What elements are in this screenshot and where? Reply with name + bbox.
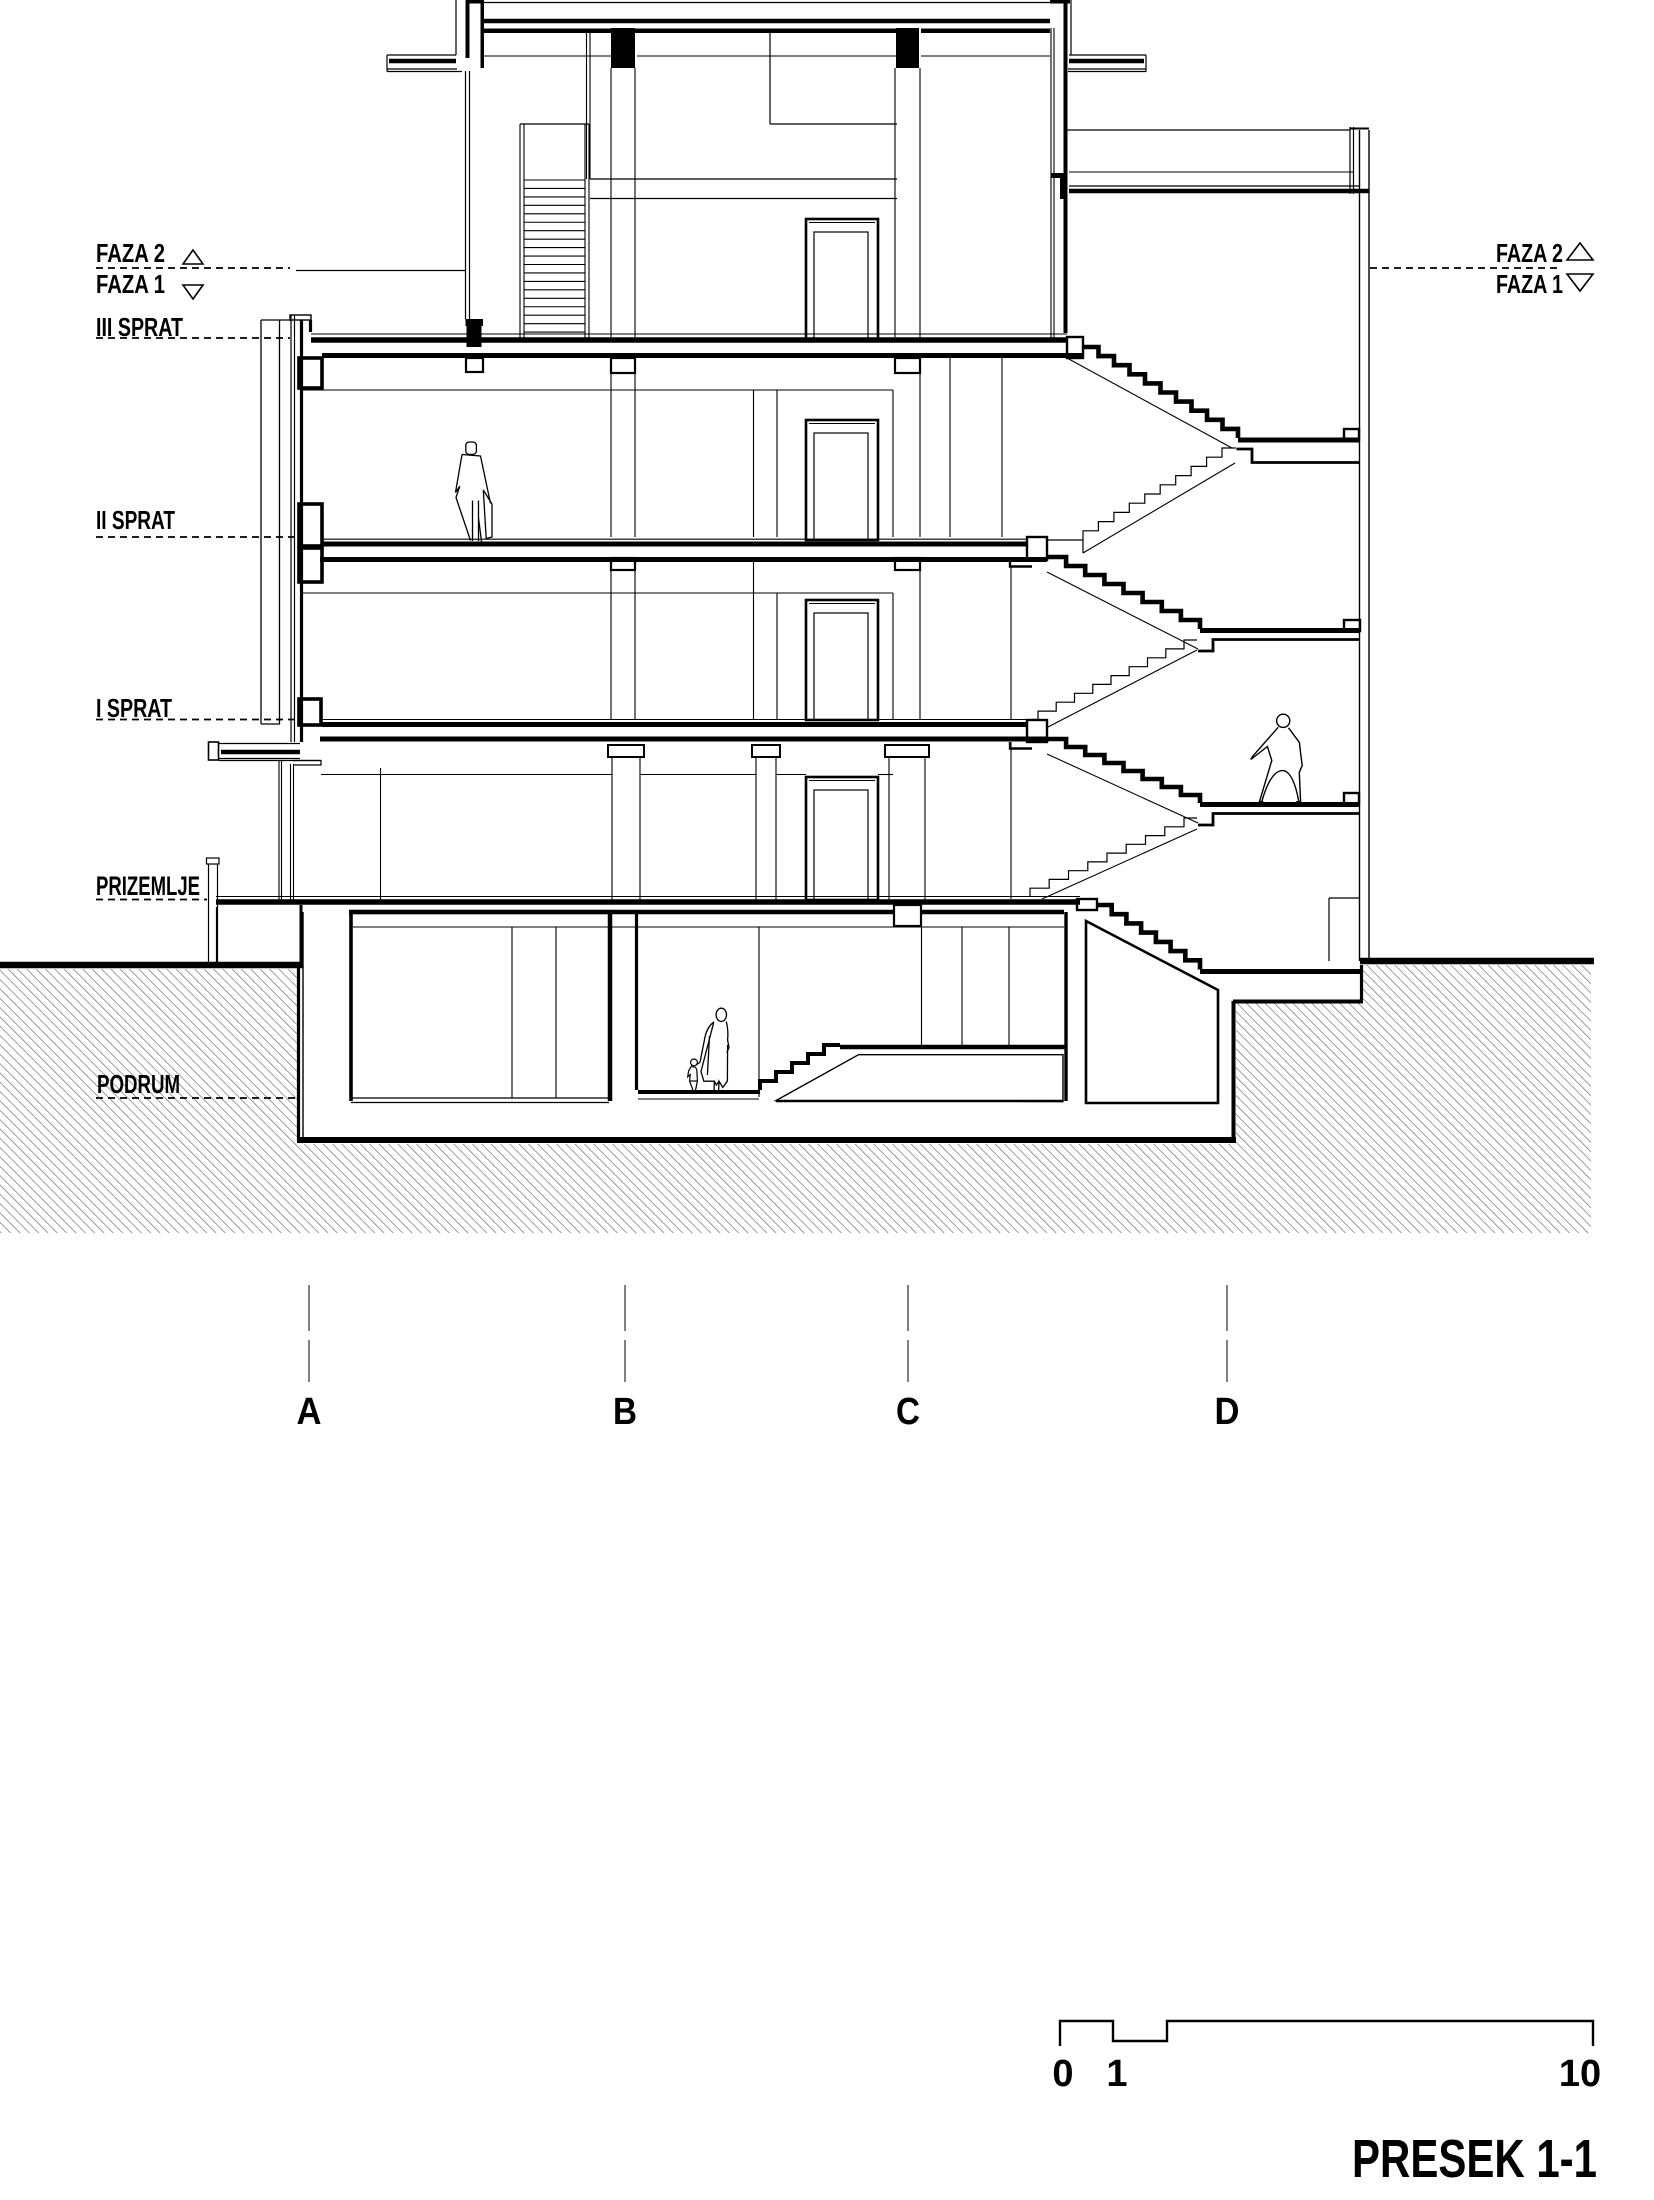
svg-text:FAZA 1: FAZA 1 (1496, 269, 1563, 299)
svg-text:FAZA 2: FAZA 2 (96, 238, 165, 268)
svg-text:1: 1 (1106, 2053, 1127, 2095)
svg-text:II SPRAT: II SPRAT (96, 505, 175, 535)
svg-text:FAZA 2: FAZA 2 (1496, 238, 1563, 268)
svg-text:0: 0 (1052, 2053, 1073, 2095)
svg-text:D: D (1215, 1391, 1240, 1433)
svg-text:FAZA 1: FAZA 1 (96, 269, 165, 299)
svg-text:III SPRAT: III SPRAT (96, 312, 183, 342)
svg-text:PRESEK 1-1: PRESEK 1-1 (1352, 2129, 1597, 2189)
svg-text:C: C (896, 1391, 920, 1433)
svg-text:A: A (297, 1391, 322, 1433)
svg-text:10: 10 (1559, 2053, 1601, 2095)
svg-text:I SPRAT: I SPRAT (96, 693, 172, 723)
svg-text:PRIZEMLJE: PRIZEMLJE (96, 871, 200, 901)
svg-text:B: B (613, 1391, 637, 1433)
svg-text:PODRUM: PODRUM (97, 1069, 180, 1099)
